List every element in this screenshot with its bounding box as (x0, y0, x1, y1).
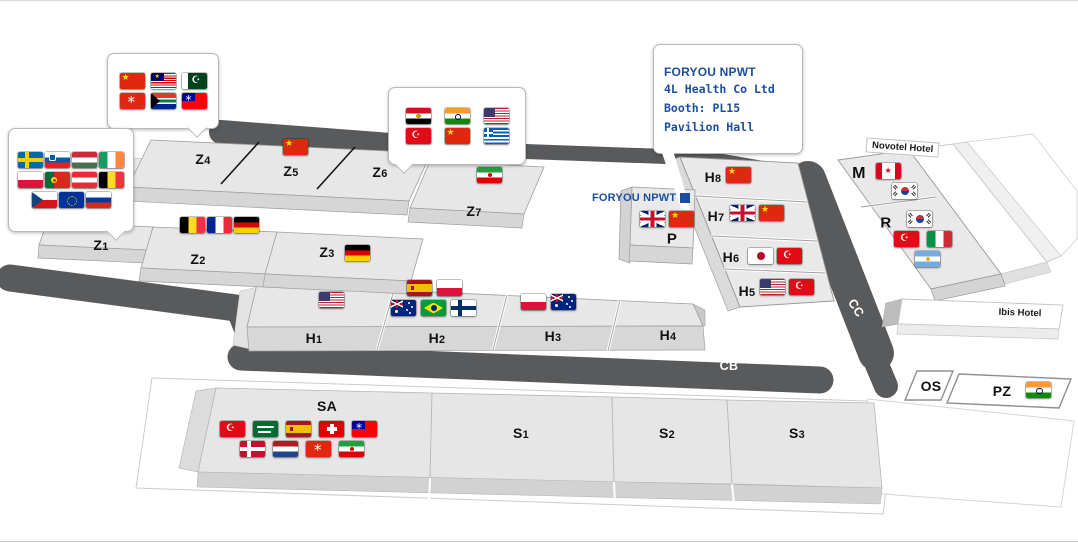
hall-z1-label: Z1 (93, 237, 108, 253)
hall-s3-label: S3 (789, 425, 805, 441)
pz-flags (1026, 382, 1051, 398)
hall-h6-label: H6 (723, 249, 740, 265)
flag-uk (730, 205, 755, 221)
flag-saudi-arabia (253, 421, 278, 437)
flag-japan (748, 248, 773, 264)
flag-turkey: ☪ (777, 248, 802, 264)
flag-china: ★ (445, 128, 470, 144)
flag-malaysia: ★ (151, 73, 176, 89)
flag-row: ☪★ (406, 128, 509, 144)
area-os-label: OS (921, 378, 942, 394)
z3-flags (345, 245, 370, 261)
flag-greece (484, 128, 509, 144)
flag-row: ★ (876, 163, 917, 179)
h1-flags (319, 292, 344, 308)
h6-flags: ☪ (748, 248, 802, 264)
flag-hong-kong: * (120, 93, 145, 109)
flag-portugal (45, 172, 70, 188)
flag-poland (521, 294, 546, 310)
hall-h3-label: H3 (545, 328, 562, 344)
exhibitor-booth: Booth: PL15 (664, 100, 740, 117)
flag-france (207, 217, 232, 233)
flag-row: * (240, 441, 377, 457)
flag-row (18, 172, 124, 188)
corridor-cb-label: CB (720, 359, 739, 373)
callout-europe-flags (8, 128, 134, 232)
flag-china: ★ (669, 211, 694, 227)
hall-s1-label: S1 (513, 425, 529, 441)
flag-row: ★ (640, 211, 694, 227)
h2-flags (391, 280, 476, 316)
flag-uk (640, 211, 665, 227)
flag-netherlands (273, 441, 298, 457)
flag-row (521, 294, 576, 310)
hall-s2-label: S2 (659, 425, 675, 441)
flag-switzerland (319, 421, 344, 437)
flag-iran (339, 441, 364, 457)
h5-flags: ☪ (760, 279, 814, 295)
z2-flags (180, 217, 259, 233)
flag-taiwan: * (352, 421, 377, 437)
flag-south-africa (151, 93, 176, 109)
flag-czech-republic (32, 192, 57, 208)
hall-h2-label: H2 (429, 330, 446, 346)
flag-italy (927, 231, 952, 247)
z7-flags (477, 167, 502, 183)
flag-pakistan: ☪ (182, 73, 207, 89)
flag-south-korea (907, 211, 932, 227)
h3-flags (521, 294, 576, 310)
flag-taiwan: * (182, 93, 207, 109)
flag-row: ** (120, 93, 207, 109)
ibis-hotel-label: Ibis Hotel (998, 307, 1041, 319)
flag-canada: ★ (876, 163, 901, 179)
exhibitor-hall: Pavilion Hall (664, 119, 754, 136)
flag-poland (18, 172, 43, 188)
flag-belgium (99, 172, 124, 188)
flag-spain (407, 280, 432, 296)
r-flags: ☪ (894, 211, 952, 267)
flag-row: ★ (283, 139, 308, 155)
foryou-npwt-logo: FORYOU NPWT (664, 65, 756, 79)
callout-middle-east-flags: ☪★ (388, 87, 526, 165)
hall-h4-label: H4 (660, 327, 677, 343)
flag-germany (345, 245, 370, 261)
flag-usa (319, 292, 344, 308)
flag-row: ☪ (760, 279, 814, 295)
flag-eu (59, 192, 84, 208)
hall-p-label: P (667, 231, 677, 248)
flag-row (477, 167, 502, 183)
callout-middle-east-flag-grid: ☪★ (406, 108, 509, 144)
hall-h7-label: H7 (708, 208, 725, 224)
flag-turkey: ☪ (894, 231, 919, 247)
hall-z4-label: Z4 (195, 151, 210, 167)
p-flags: ★ (640, 211, 694, 227)
flag-turkey: ☪ (220, 421, 245, 437)
flag-row: ★ (726, 167, 751, 183)
flag-australia (551, 294, 576, 310)
flag-row (407, 280, 476, 296)
flag-finland (451, 300, 476, 316)
flag-china: ★ (726, 167, 751, 183)
hall-z2-label: Z2 (190, 251, 205, 267)
flag-row: ☪ (894, 231, 952, 247)
booth-marker-square-icon (680, 193, 690, 203)
flag-hungary (72, 152, 97, 168)
flag-row (892, 183, 917, 199)
callout-asia-flag-grid: ★★☪** (120, 73, 207, 109)
flag-slovenia (45, 152, 70, 168)
flag-australia (391, 300, 416, 316)
flag-spain (286, 421, 311, 437)
flag-row: ★★☪ (120, 73, 207, 89)
hall-h8-label: H8 (705, 169, 722, 185)
z5-flags: ★ (283, 139, 308, 155)
hall-h1-label: H1 (306, 330, 323, 346)
flag-row: ★ (730, 205, 784, 221)
hall-r-label: R (880, 215, 891, 232)
callout-europe-flag-grid (18, 152, 124, 208)
flag-denmark (240, 441, 265, 457)
flag-hong-kong: * (306, 441, 331, 457)
hall-z3-label: Z3 (319, 244, 334, 260)
flag-india (445, 108, 470, 124)
booth-marker-logo-text: FORYOU NPWT (592, 192, 676, 204)
flag-row (907, 211, 952, 227)
flag-row (406, 108, 509, 124)
booth-marker: FORYOU NPWT (592, 192, 690, 204)
hall-z7-label: Z7 (466, 203, 481, 219)
m-flags: ★ (876, 163, 917, 199)
flag-ireland (99, 152, 124, 168)
flag-brazil (421, 300, 446, 316)
flag-row: ☪ (748, 248, 802, 264)
flag-row (180, 217, 259, 233)
exhibitor-company: 4L Health Co Ltd (664, 81, 775, 98)
flag-row (1026, 382, 1051, 398)
flag-russia (86, 192, 111, 208)
flag-row: ☪* (220, 421, 377, 437)
exhibition-map: Z1 Z2 Z3 Z4 Z5 Z6 Z7 H1 H2 H3 H4 H5 H6 H… (0, 0, 1078, 542)
flag-row (319, 292, 344, 308)
hall-m-label: M (852, 165, 866, 183)
flag-poland (437, 280, 462, 296)
flag-south-korea (892, 183, 917, 199)
sa-flags: ☪** (220, 421, 377, 457)
flag-argentina (915, 251, 940, 267)
flag-usa (484, 108, 509, 124)
flag-china: ★ (283, 139, 308, 155)
callout-exhibitor: FORYOU NPWT 4L Health Co Ltd Booth: PL15… (653, 44, 803, 154)
h8-flags: ★ (726, 167, 751, 183)
flag-row (18, 152, 124, 168)
flag-row (915, 251, 952, 267)
flag-china: ★ (759, 205, 784, 221)
hall-z5-label: Z5 (283, 163, 298, 179)
flag-china: ★ (120, 73, 145, 89)
flag-india (1026, 382, 1051, 398)
flag-turkey: ☪ (406, 128, 431, 144)
flag-turkey: ☪ (789, 279, 814, 295)
flag-usa (760, 279, 785, 295)
flag-egypt (406, 108, 431, 124)
flag-austria (72, 172, 97, 188)
area-pz-label: PZ (993, 383, 1012, 399)
flag-iran (477, 167, 502, 183)
flag-row (391, 300, 476, 316)
hall-sa-label: SA (317, 398, 337, 414)
flag-sweden (18, 152, 43, 168)
flag-germany (234, 217, 259, 233)
flag-belgium (180, 217, 205, 233)
flag-row (32, 192, 111, 208)
h7-flags: ★ (730, 205, 784, 221)
hall-z6-label: Z6 (372, 164, 387, 180)
callout-asia-flags: ★★☪** (107, 53, 219, 129)
hall-h5-label: H5 (739, 283, 756, 299)
flag-row (345, 245, 370, 261)
